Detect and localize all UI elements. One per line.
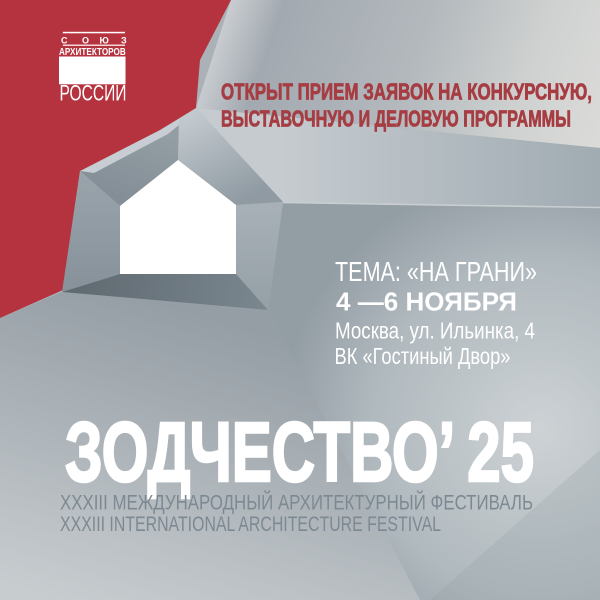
svg-text:XXXIII МЕЖДУНАРОДНЫЙ АРХИТЕКТУ: XXXIII МЕЖДУНАРОДНЫЙ АРХИТЕКТУРНЫЙ ФЕСТИ… (60, 491, 533, 515)
svg-text:Ю: Ю (100, 36, 109, 46)
svg-text:XXXIII INTERNATIONAL ARCHITECT: XXXIII INTERNATIONAL ARCHITECTURE FESTIV… (60, 513, 441, 536)
svg-text:ОТКРЫТ ПРИЕМ ЗАЯВОК НА КОНКУРС: ОТКРЫТ ПРИЕМ ЗАЯВОК НА КОНКУРСНУЮ, (221, 79, 592, 105)
svg-text:ЗОДЧЕСТВО’ 25: ЗОДЧЕСТВО’ 25 (65, 405, 534, 499)
svg-text:ВЫСТАВОЧНУЮ И ДЕЛОВУЮ ПРОГРАММ: ВЫСТАВОЧНУЮ И ДЕЛОВУЮ ПРОГРАММЫ (221, 106, 571, 132)
svg-text:ВК «Гостиный Двор»: ВК «Гостиный Двор» (335, 343, 511, 369)
svg-text:Москва, ул. Ильинка, 4: Москва, ул. Ильинка, 4 (335, 318, 535, 344)
svg-text:О: О (82, 36, 89, 46)
svg-text:С: С (61, 36, 68, 46)
svg-text:ТЕМА: «НА ГРАНИ»: ТЕМА: «НА ГРАНИ» (335, 256, 537, 287)
svg-text:АРХИТЕКТОРОВ: АРХИТЕКТОРОВ (59, 47, 126, 58)
svg-text:З: З (121, 36, 127, 46)
svg-text:РОССИИ: РОССИИ (60, 81, 127, 106)
svg-text:4 —6 НОЯБРЯ: 4 —6 НОЯБРЯ (336, 289, 517, 317)
